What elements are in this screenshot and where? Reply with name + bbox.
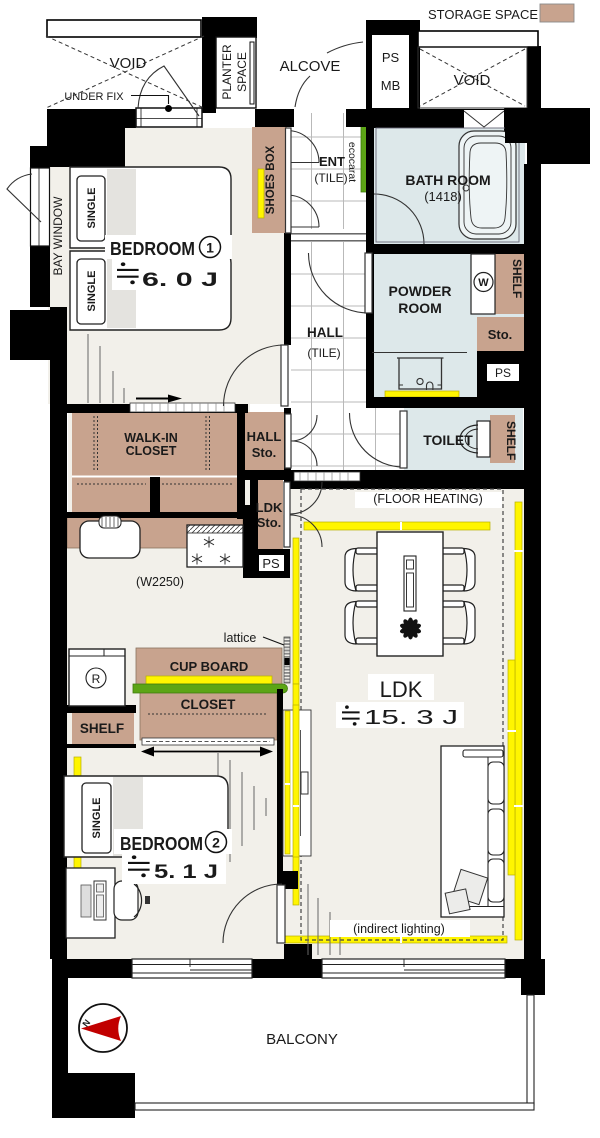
svg-text:LDK: LDK	[380, 677, 423, 702]
svg-text:CLOSET: CLOSET	[126, 444, 177, 458]
svg-text:SINGLE: SINGLE	[91, 798, 103, 839]
svg-text:WALK-IN: WALK-IN	[124, 431, 177, 445]
svg-text:Sto.: Sto.	[257, 515, 282, 530]
svg-text:SINGLE: SINGLE	[86, 271, 98, 312]
svg-text:ecocarat: ecocarat	[346, 142, 358, 182]
svg-text:UNDER FIX: UNDER FIX	[64, 91, 124, 103]
svg-text:POWDER: POWDER	[389, 283, 452, 299]
svg-text:SHELF: SHELF	[504, 421, 518, 460]
svg-text:SINGLE: SINGLE	[86, 188, 98, 229]
svg-text:PLANTER: PLANTER	[220, 44, 234, 100]
svg-text:ALCOVE: ALCOVE	[280, 58, 341, 75]
svg-text:HALL: HALL	[307, 325, 343, 340]
svg-text:W: W	[478, 277, 489, 289]
svg-text:(W2250): (W2250)	[136, 575, 184, 589]
svg-text:SHELF: SHELF	[80, 721, 124, 736]
svg-text:Sto.: Sto.	[252, 445, 277, 460]
svg-text:CUP BOARD: CUP BOARD	[170, 659, 249, 674]
svg-text:1: 1	[206, 240, 214, 256]
svg-text:(indirect lighting): (indirect lighting)	[353, 922, 445, 936]
svg-text:MB: MB	[381, 78, 401, 93]
svg-text:R: R	[92, 672, 101, 686]
svg-text:TOILET: TOILET	[423, 432, 473, 448]
svg-text:HALL: HALL	[247, 429, 282, 444]
svg-text:2: 2	[212, 835, 220, 851]
svg-text:15. 3 J: 15. 3 J	[364, 706, 458, 729]
svg-text:BEDROOM: BEDROOM	[110, 238, 195, 259]
svg-text:5. 1 J: 5. 1 J	[154, 861, 218, 883]
svg-text:(TILE): (TILE)	[314, 171, 347, 185]
svg-text:ENT: ENT	[319, 154, 345, 169]
svg-text:VOID: VOID	[454, 72, 491, 89]
svg-text:PS: PS	[495, 366, 511, 380]
svg-text:PS: PS	[382, 50, 400, 65]
svg-text:PS: PS	[262, 556, 280, 571]
svg-text:SHELF: SHELF	[510, 259, 524, 298]
svg-text:lattice: lattice	[224, 631, 257, 645]
svg-text:(1418): (1418)	[424, 189, 462, 204]
svg-text:LDK: LDK	[256, 500, 283, 515]
svg-text:VOID: VOID	[110, 55, 147, 72]
svg-text:(TILE): (TILE)	[307, 346, 340, 360]
svg-text:BEDROOM: BEDROOM	[120, 833, 203, 854]
svg-text:(FLOOR HEATING): (FLOOR HEATING)	[373, 492, 483, 506]
svg-text:SPACE: SPACE	[235, 52, 249, 92]
svg-text:STORAGE SPACE: STORAGE SPACE	[428, 7, 538, 22]
svg-text:SHOES BOX: SHOES BOX	[265, 145, 277, 214]
svg-text:ROOM: ROOM	[398, 300, 442, 316]
svg-text:6. 0 J: 6. 0 J	[142, 269, 218, 291]
svg-text:BATH ROOM: BATH ROOM	[405, 172, 490, 188]
svg-text:CLOSET: CLOSET	[181, 697, 237, 712]
svg-text:Sto.: Sto.	[488, 327, 513, 342]
svg-text:BAY WINDOW: BAY WINDOW	[51, 196, 65, 276]
svg-text:BALCONY: BALCONY	[266, 1031, 338, 1048]
